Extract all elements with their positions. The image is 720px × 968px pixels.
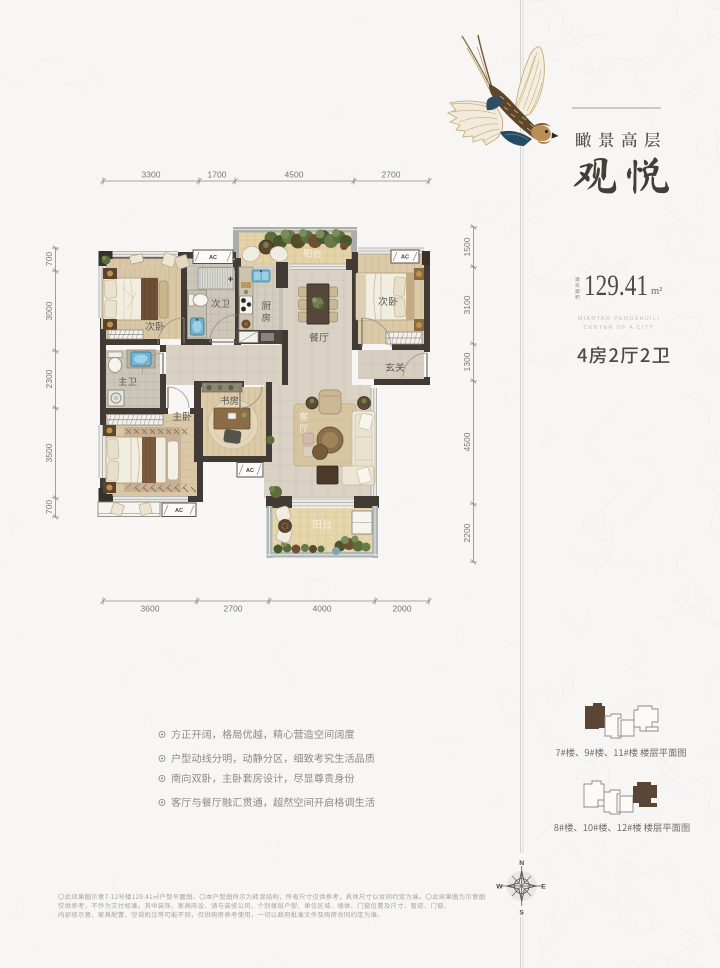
svg-text:4000: 4000 [313,604,332,614]
svg-text:3500: 3500 [44,443,54,462]
svg-text:2200: 2200 [462,523,472,542]
svg-text:AC: AC [209,255,217,261]
svg-text:4500: 4500 [462,432,472,451]
svg-text:2700: 2700 [224,604,243,614]
svg-text:700: 700 [44,500,54,514]
svg-text:CENTER OF A CITY: CENTER OF A CITY [584,325,655,331]
svg-text:2000: 2000 [393,604,412,614]
svg-text:AC: AC [246,468,254,474]
svg-text:1500: 1500 [462,237,472,256]
svg-text:700: 700 [44,252,54,266]
svg-text:W: W [496,884,503,891]
svg-text:MIANTAO PENGSHUILI: MIANTAO PENGSHUILI [578,316,661,322]
svg-text:3100: 3100 [462,295,472,314]
svg-text:AC: AC [175,508,183,514]
svg-text:2700: 2700 [382,170,401,180]
svg-text:1300: 1300 [462,352,472,371]
svg-text:4500: 4500 [285,170,304,180]
svg-text:129.41: 129.41 [584,269,648,302]
svg-text:m²: m² [651,286,662,297]
svg-text:2300: 2300 [44,369,54,388]
svg-text:N: N [519,860,524,867]
svg-text:E: E [541,884,546,891]
svg-text:3600: 3600 [141,604,160,614]
svg-text:AC: AC [401,255,409,261]
svg-text:3000: 3000 [44,301,54,320]
svg-text:3300: 3300 [142,170,161,180]
svg-text:1700: 1700 [208,170,227,180]
svg-text:S: S [519,910,524,917]
